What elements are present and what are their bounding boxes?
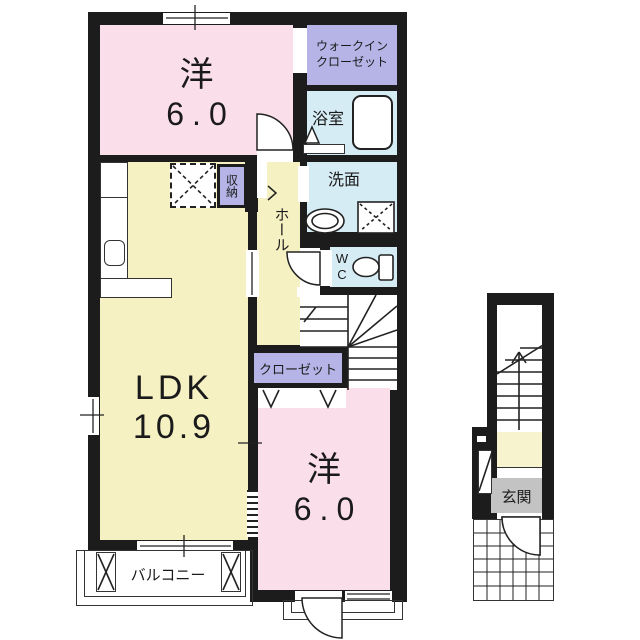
balcony-post-right — [221, 552, 241, 592]
bathtub — [352, 95, 393, 150]
window-ldk-left — [88, 397, 99, 435]
stairs-main-lower — [348, 347, 397, 390]
stairs-entry-step — [297, 287, 320, 297]
closet-box — [251, 350, 345, 386]
floorplan: 洋 6.0 ウォークイン クローゼット 浴室 洗面 W C 収納 ホール LDK… — [0, 0, 640, 640]
closet-door-band — [258, 388, 346, 408]
entry-genkan — [491, 478, 542, 513]
kitchen-counter-bottom — [100, 278, 172, 298]
room-bedroom-bottom — [258, 388, 390, 590]
kitchen-sink — [104, 240, 125, 266]
door-ldk-bedroom — [247, 490, 258, 537]
kitchen-counter-left — [100, 197, 128, 279]
stairs-main-upper — [300, 295, 397, 347]
room-washroom — [307, 162, 397, 232]
balcony-post-left — [96, 552, 116, 592]
door-washroom-gap — [298, 166, 309, 202]
door-bedroom-top-leaf — [257, 162, 267, 198]
door-wc-gap — [318, 250, 332, 286]
entry-tile-porch — [473, 519, 554, 601]
room-walk-in-closet — [307, 25, 397, 85]
porch-inner — [291, 600, 395, 613]
bath-door-track — [303, 144, 345, 154]
storage-box — [217, 164, 247, 208]
entry-bump-dash — [477, 436, 486, 442]
fridge-space — [170, 163, 216, 208]
kitchen-counter-top — [100, 162, 128, 199]
door-bedroom-top-gap — [257, 149, 293, 162]
room-wc — [330, 247, 397, 287]
entry-landing — [497, 432, 542, 468]
opening-wic — [293, 28, 307, 73]
entry-bump-inner — [478, 450, 492, 494]
wc-door-area — [300, 248, 320, 288]
room-bedroom-top — [100, 25, 293, 155]
door-ldk-hall-gap — [246, 250, 259, 297]
window-top — [163, 13, 230, 24]
